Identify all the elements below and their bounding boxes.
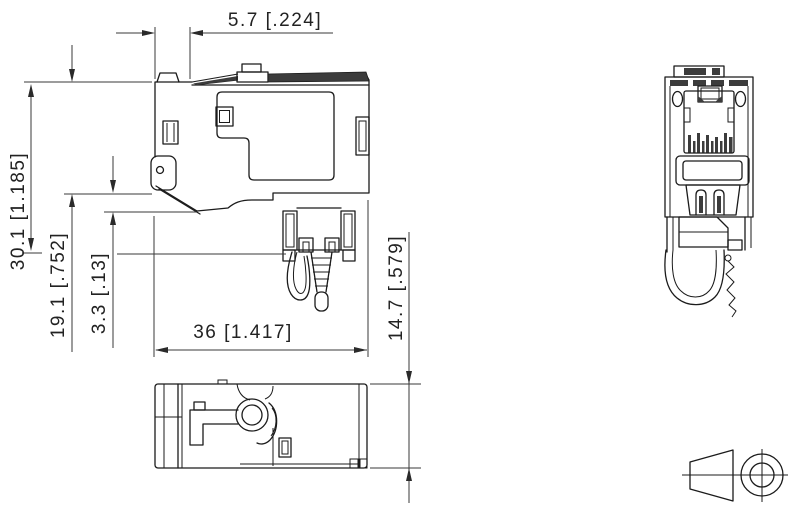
- bottom-view: [155, 380, 367, 468]
- technical-drawing-canvas: 5.7 [.224] 36 [1.417] 30.1 [1.185] 19.1 …: [0, 0, 793, 506]
- top-latch-arm: [192, 64, 369, 85]
- dim-overall-width: 36 [1.417]: [193, 322, 293, 343]
- bottom-inner-details: [155, 380, 367, 468]
- cable-loop-front: [665, 250, 724, 305]
- front-view: [665, 66, 753, 317]
- dimension-labels: 5.7 [.224] 36 [1.417] 30.1 [1.185] 19.1 …: [8, 10, 407, 343]
- dim-body-depth: 14.7 [.579]: [386, 235, 407, 341]
- dim-housing-height: 19.1 [.752]: [48, 232, 69, 338]
- housing-inner-details: [163, 92, 369, 180]
- cable-loop: [287, 252, 310, 300]
- lower-recess: [676, 156, 749, 185]
- side-view: [151, 64, 369, 311]
- plug-block: [283, 208, 355, 261]
- drawing-svg: 5.7 [.224] 36 [1.417] 30.1 [1.185] 19.1 …: [0, 0, 793, 506]
- mounting-legs: [686, 185, 740, 215]
- pull-wire: [725, 255, 736, 317]
- dim-latch-step: 3.3 [.13]: [89, 252, 110, 334]
- housing-outline: [151, 73, 369, 214]
- bottom-outline: [155, 384, 367, 468]
- cable-manager-body: [667, 217, 751, 252]
- first-angle-projection-icon: [682, 449, 788, 502]
- strain-relief-boot: [311, 252, 332, 311]
- dim-overall-height: 30.1 [1.185]: [8, 152, 29, 270]
- contact-pins: [686, 133, 733, 153]
- dimension-lines: [22, 27, 421, 503]
- dim-latch-offset-top: 5.7 [.224]: [228, 10, 322, 31]
